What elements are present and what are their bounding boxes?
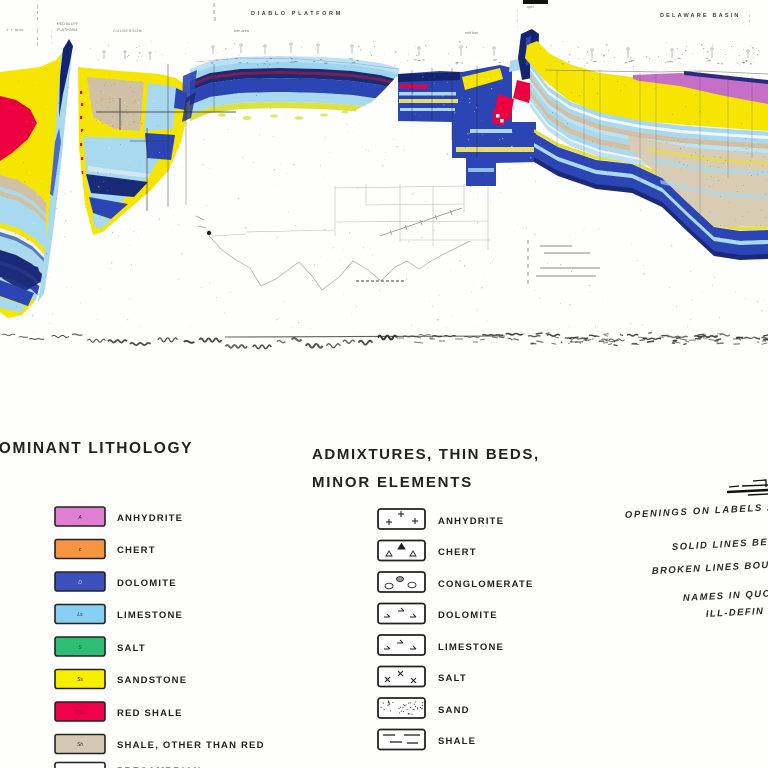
svg-text:mid bsn: mid bsn <box>465 31 478 35</box>
svg-text:.: . <box>51 46 52 50</box>
svg-text:SAND: SAND <box>438 705 470 716</box>
svg-text:RED SHALE: RED SHALE <box>117 708 183 719</box>
svg-text:Sh: Sh <box>77 742 83 748</box>
svg-text:PLATFORM: PLATFORM <box>57 28 77 32</box>
svg-text::: : <box>749 9 750 13</box>
svg-text:MINOR ELEMENTS: MINOR ELEMENTS <box>312 474 473 491</box>
svg-text:apex: apex <box>527 5 534 9</box>
svg-text:CHERT: CHERT <box>117 545 156 556</box>
svg-text:l: l <box>37 42 38 47</box>
svg-text:CHERT: CHERT <box>438 547 477 558</box>
svg-text:A: A <box>77 515 82 521</box>
svg-text:SALT: SALT <box>117 643 146 654</box>
svg-text:.: . <box>749 23 750 27</box>
svg-text:CULBERSON: CULBERSON <box>113 29 142 33</box>
svg-text:D: D <box>78 580 82 586</box>
svg-text:;: ; <box>51 29 52 33</box>
svg-text:SALT: SALT <box>438 673 467 684</box>
svg-text:CONGLOMERATE: CONGLOMERATE <box>438 579 534 590</box>
svg-text:ADMIXTURES, THIN BEDS,: ADMIXTURES, THIN BEDS, <box>312 446 540 463</box>
svg-text:ANHYDRITE: ANHYDRITE <box>117 513 183 524</box>
svg-text:Ls: Ls <box>77 612 83 618</box>
svg-text:LIMESTONE: LIMESTONE <box>117 610 183 621</box>
svg-text:RSh: RSh <box>75 710 85 716</box>
svg-text:SHALE, OTHER THAN RED: SHALE, OTHER THAN RED <box>117 740 265 751</box>
svg-text:mtn area: mtn area <box>234 29 250 33</box>
svg-text:DOLOMITE: DOLOMITE <box>438 610 498 621</box>
svg-text:Ss: Ss <box>77 677 83 683</box>
svg-text:|: | <box>37 4 38 9</box>
svg-text:DOMINANT LITHOLOGY: DOMINANT LITHOLOGY <box>0 440 193 457</box>
svg-text:RED BLUFF: RED BLUFF <box>57 22 79 26</box>
svg-text:|: | <box>37 28 38 33</box>
svg-text:LIMESTONE: LIMESTONE <box>438 642 504 653</box>
svg-text:.: . <box>517 28 518 32</box>
svg-text:DOLOMITE: DOLOMITE <box>117 578 177 589</box>
svg-text:ANHYDRITE: ANHYDRITE <box>438 516 504 527</box>
svg-text:DIABLO PLATFORM: DIABLO PLATFORM <box>251 11 343 17</box>
svg-text:DELAWARE BASIN: DELAWARE BASIN <box>660 13 741 19</box>
svg-text:i: i <box>37 36 38 41</box>
svg-text:1 + mile: 1 + mile <box>6 27 24 32</box>
svg-text:.: . <box>37 22 38 27</box>
svg-text:SANDSTONE: SANDSTONE <box>117 675 187 686</box>
svg-text::: : <box>51 41 52 45</box>
svg-text::: : <box>517 14 518 18</box>
svg-text:SHALE: SHALE <box>438 736 476 747</box>
